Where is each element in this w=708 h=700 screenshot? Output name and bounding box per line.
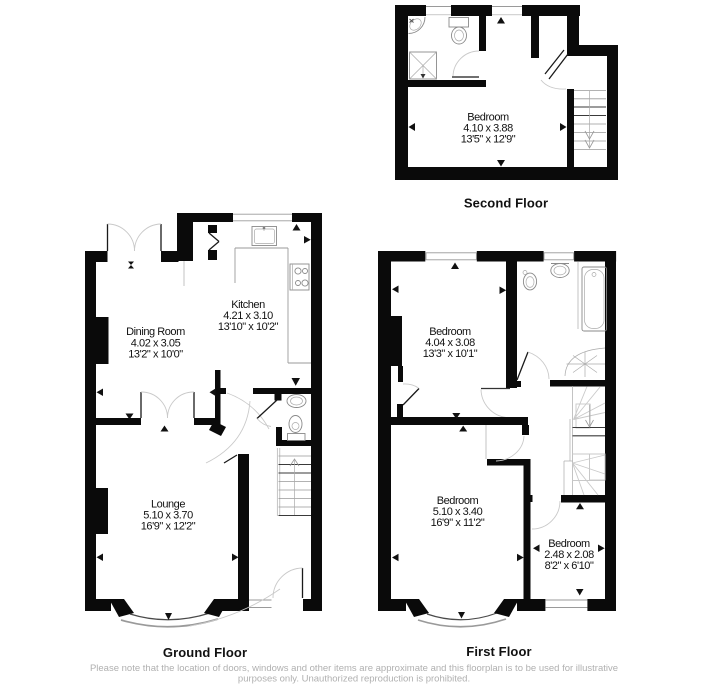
svg-text:13'2" x 10'0": 13'2" x 10'0" bbox=[128, 349, 183, 361]
svg-text:Dining Room: Dining Room bbox=[126, 326, 185, 338]
svg-text:13'10" x 10'2": 13'10" x 10'2" bbox=[218, 321, 279, 333]
svg-text:Second Floor: Second Floor bbox=[464, 196, 548, 211]
svg-text:purposes only. Unauthorized re: purposes only. Unauthorized reproduction… bbox=[238, 674, 470, 685]
svg-text:13'5" x 12'9": 13'5" x 12'9" bbox=[461, 134, 516, 146]
svg-text:16'9" x 11'2": 16'9" x 11'2" bbox=[431, 517, 485, 529]
svg-text:8'2" x 6'10": 8'2" x 6'10" bbox=[545, 560, 594, 572]
svg-text:Ground Floor: Ground Floor bbox=[163, 645, 247, 660]
svg-text:Please note that the location: Please note that the location of doors, … bbox=[90, 663, 618, 674]
svg-text:13'3" x 10'1": 13'3" x 10'1" bbox=[423, 348, 478, 360]
svg-text:16'9" x 12'2": 16'9" x 12'2" bbox=[141, 521, 196, 533]
svg-text:First Floor: First Floor bbox=[466, 644, 531, 659]
